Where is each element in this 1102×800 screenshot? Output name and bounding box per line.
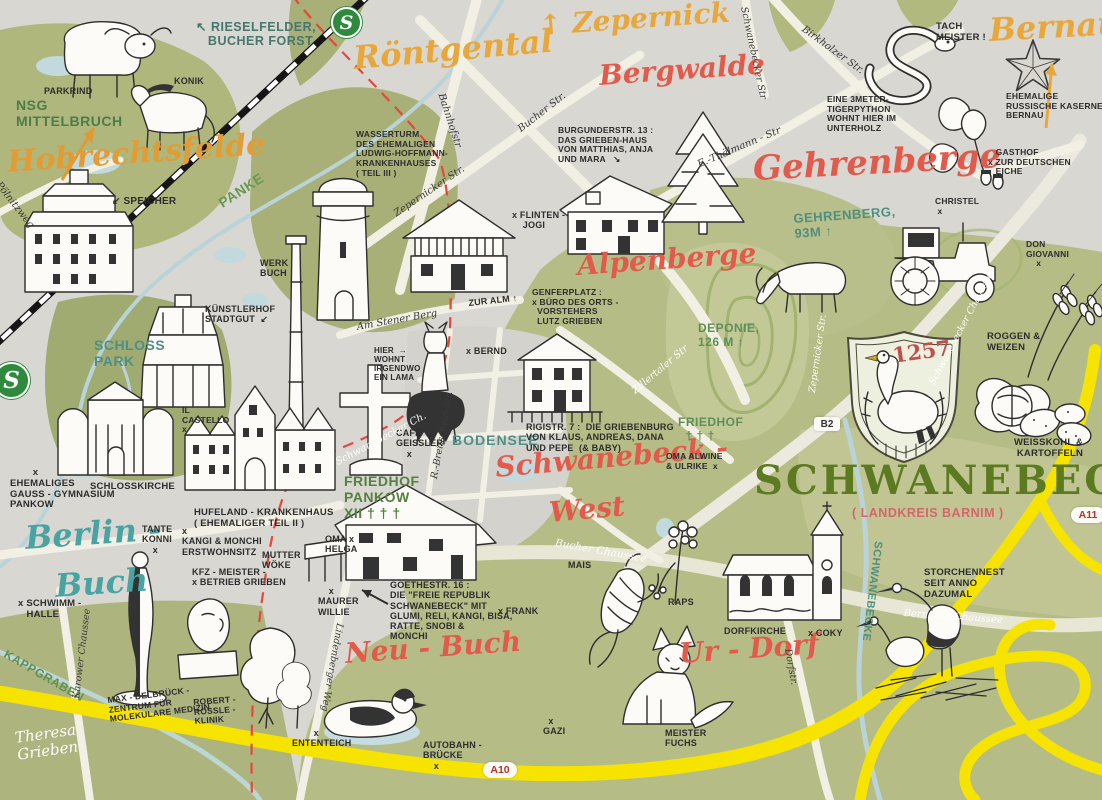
sbahn-station-badge-roentgental: S [331,7,362,38]
route-badge-b2: B2 [814,417,840,431]
map-artwork [0,0,1102,800]
route-badge-a10: A10 [483,762,517,778]
illustrated-map-schwanebeck: HobrechtsfeldeRöntgental↑ ZepernickBergw… [0,0,1102,800]
water-tower [313,179,373,321]
route-badge-a11: A11 [1071,507,1102,523]
